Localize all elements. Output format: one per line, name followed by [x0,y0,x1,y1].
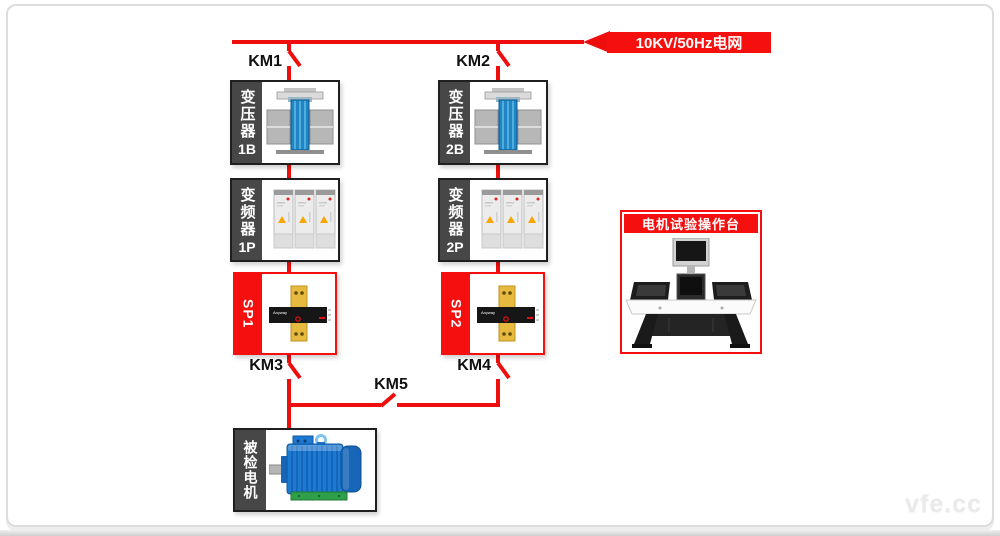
converter-1p-id: 1P [238,240,255,254]
km2-label: KM2 [446,53,490,71]
transformer-2b-name: 变压器 [448,89,463,140]
sensor-sp2-illustration: Anyway [470,274,543,353]
grid-source-label: 10KV/50Hz电网 [607,32,771,53]
sensor-sp1-illustration: Anyway [262,274,335,353]
converter-2p-illustration [470,180,546,260]
transformer-1b-illustration [262,82,338,163]
converter-1p-name: 变频器 [240,187,255,238]
sensor-sp2-box: SP2 Anyway [441,272,545,355]
converter-2p-name: 变频器 [448,187,463,238]
transformer-1b-id: 1B [238,142,256,156]
converter-1p-illustration [262,180,338,260]
km2-switch-blade [498,51,509,66]
operation-console-box: 电机试验操作台 [620,210,762,354]
transformer-1b-label-strip: 变压器 1B [232,82,262,163]
km5-switch-blade [381,394,395,406]
converter-graphic [264,182,336,258]
sensor-sp1-id: SP1 [241,299,257,328]
converter-2p-id: 2P [446,240,463,254]
transformer-1b-name: 变压器 [240,89,255,140]
transformer-2b-id: 2B [446,142,464,156]
transformer-1b-box: 变压器 1B [230,80,340,165]
transformer-graphic [472,84,544,161]
grid-arrow-icon [583,31,610,53]
transformer-2b-illustration [470,82,546,163]
transformer-2b-label-strip: 变压器 2B [440,82,470,163]
converter-1p-label-strip: 变频器 1P [232,180,262,260]
sensor-brand-text: Anyway [273,310,287,315]
sensor-sp1-label-strip: SP1 [235,274,262,353]
transformer-graphic [264,84,336,161]
converter-2p-label-strip: 变频器 2P [440,180,470,260]
km4-label: KM4 [447,357,491,375]
km1-switch-blade [289,51,300,66]
console-title-banner: 电机试验操作台 [624,214,758,233]
km5-label: KM5 [368,376,414,394]
km4-switch-blade [498,363,509,378]
diagram-canvas: 10KV/50Hz电网 KM1 KM2 KM3 KM4 KM5 变压器 1B [0,0,1000,536]
motor-illustration [266,430,375,510]
watermark-text: vfe.cc [905,490,982,519]
sensor-sp1-box: SP1 Anyway [233,272,337,355]
km1-label: KM1 [238,53,282,71]
console-illustration [622,236,760,350]
sensor-sp2-id: SP2 [449,299,465,328]
sensor-brand-text: Anyway [481,310,495,315]
power-sensor-graphic: Anyway [473,276,541,351]
transformer-2b-box: 变压器 2B [438,80,548,165]
motor-label-text: 被检电机 [244,440,258,500]
converter-1p-box: 变频器 1P [230,178,340,262]
console-title-text: 电机试验操作台 [642,214,740,233]
km3-label: KM3 [239,357,283,375]
power-sensor-graphic: Anyway [265,276,333,351]
km3-switch-blade [289,363,300,378]
converter-graphic [472,182,544,258]
sensor-sp2-label-strip: SP2 [443,274,470,353]
motor-label-strip: 被检电机 [235,430,266,510]
grid-source-text: 10KV/50Hz电网 [636,32,743,53]
converter-2p-box: 变频器 2P [438,178,548,262]
motor-under-test-box: 被检电机 [233,428,377,512]
console-desk-graphic [624,238,758,350]
motor-graphic [269,432,373,508]
